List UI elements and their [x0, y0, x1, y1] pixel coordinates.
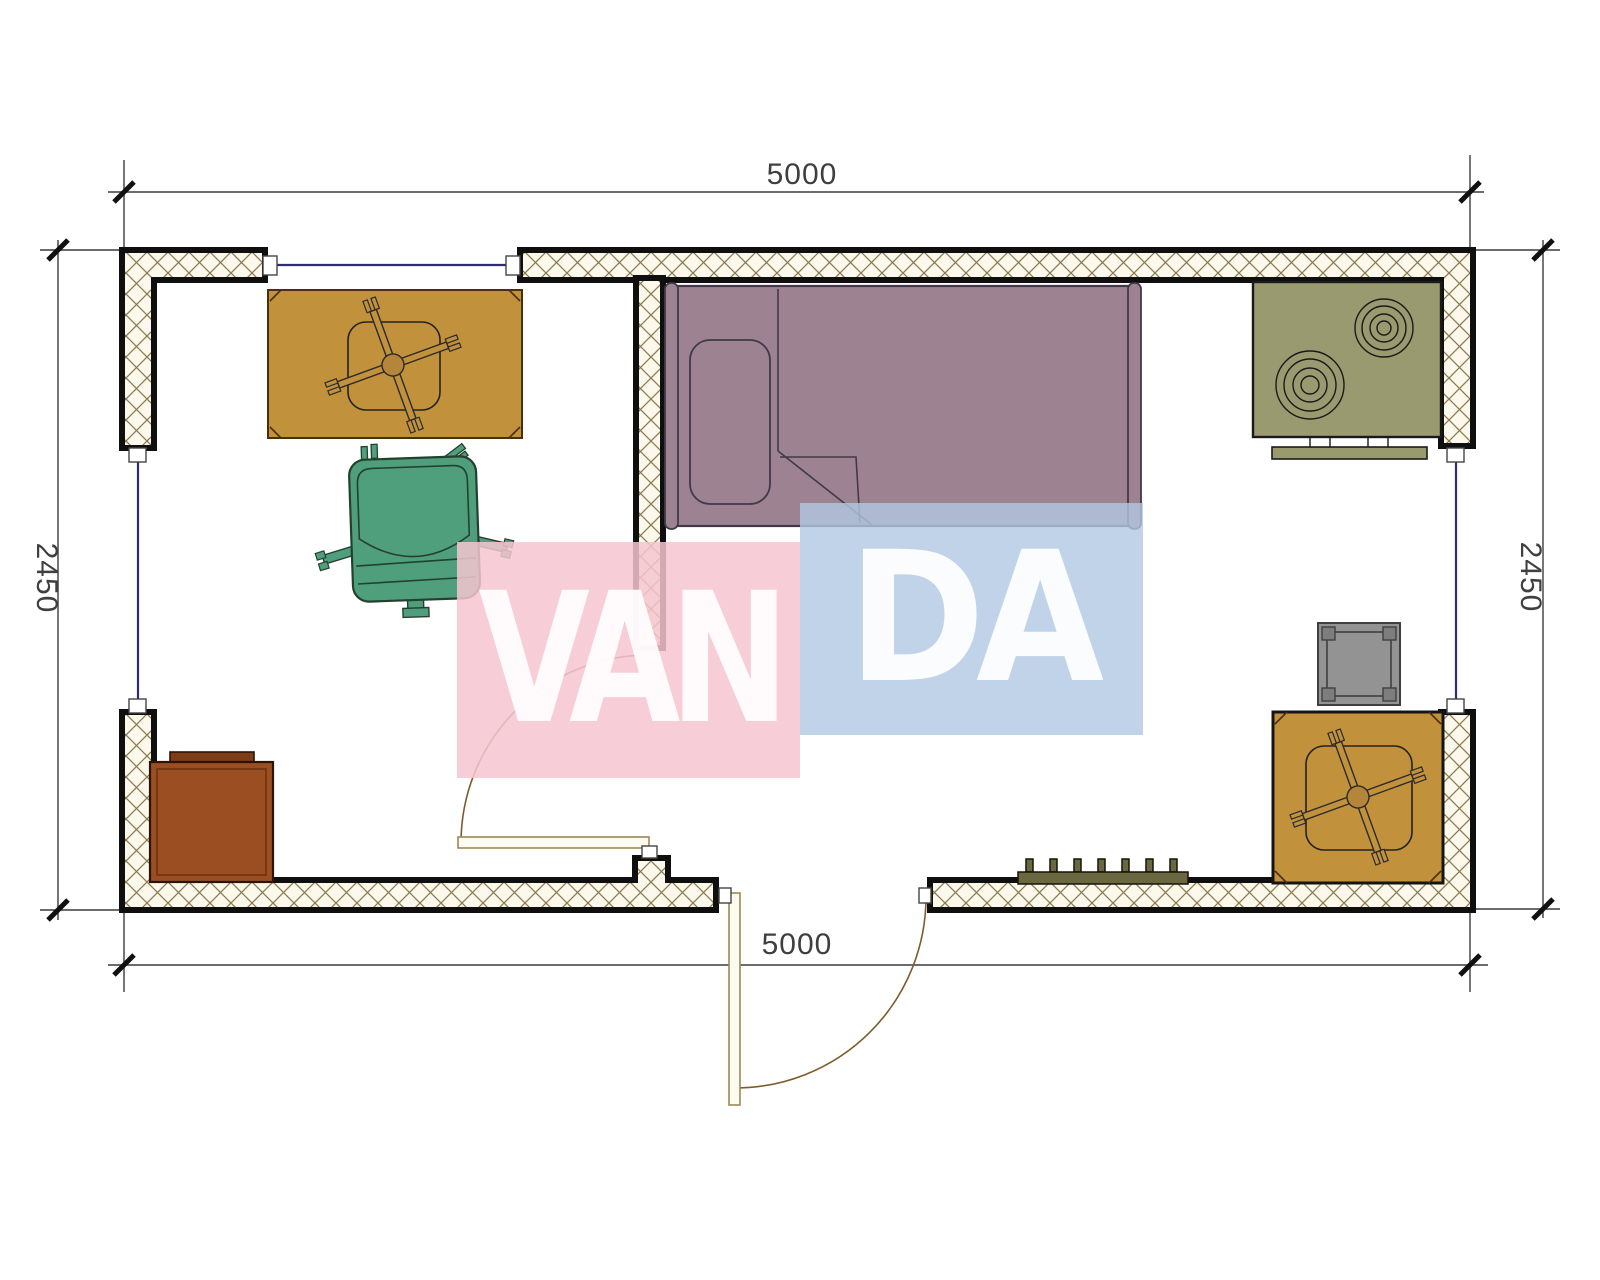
- door-leaf: [729, 893, 740, 1105]
- watermark-pink-block: VAN: [457, 542, 800, 778]
- watermark-blue-block: DA: [800, 503, 1143, 735]
- cabinet: [150, 752, 273, 882]
- side-table: [1318, 623, 1400, 705]
- wall-top-left-corner: [122, 250, 265, 448]
- dimension-label-top: 5000: [702, 158, 902, 192]
- door-swing-arc: [735, 897, 926, 1088]
- desk-table: [268, 275, 522, 454]
- radiator: [1018, 859, 1188, 884]
- floor-plan-canvas: 5000 5000 2450 2450 VAN DA: [0, 0, 1600, 1280]
- window-jamb: [129, 448, 146, 462]
- door-jamb: [642, 846, 657, 858]
- window-left: [129, 448, 146, 713]
- entrance-door: [719, 888, 931, 1105]
- square-table: [1268, 707, 1447, 886]
- window-jamb: [1447, 699, 1464, 713]
- dimension-label-right: 2450: [1512, 521, 1548, 633]
- window-top: [263, 256, 520, 275]
- cooktop-stove: [1253, 282, 1441, 459]
- door-jamb: [719, 888, 731, 903]
- window-jamb: [1447, 448, 1464, 462]
- window-jamb: [129, 699, 146, 713]
- watermark-text-left: VAN: [478, 570, 778, 750]
- watermark-text-right: DA: [848, 529, 1095, 709]
- dimension-label-bottom: 5000: [697, 928, 897, 962]
- single-bed: [665, 283, 1141, 529]
- door-jamb: [919, 888, 931, 903]
- bed-footboard: [1128, 283, 1141, 529]
- pillow: [690, 340, 770, 504]
- window-jamb: [263, 256, 277, 275]
- bed-headboard: [665, 283, 678, 529]
- stove-base: [1272, 447, 1427, 459]
- door-leaf: [458, 837, 649, 848]
- dimension-label-left: 2450: [28, 522, 64, 634]
- window-jamb: [506, 256, 520, 275]
- window-right: [1447, 448, 1464, 713]
